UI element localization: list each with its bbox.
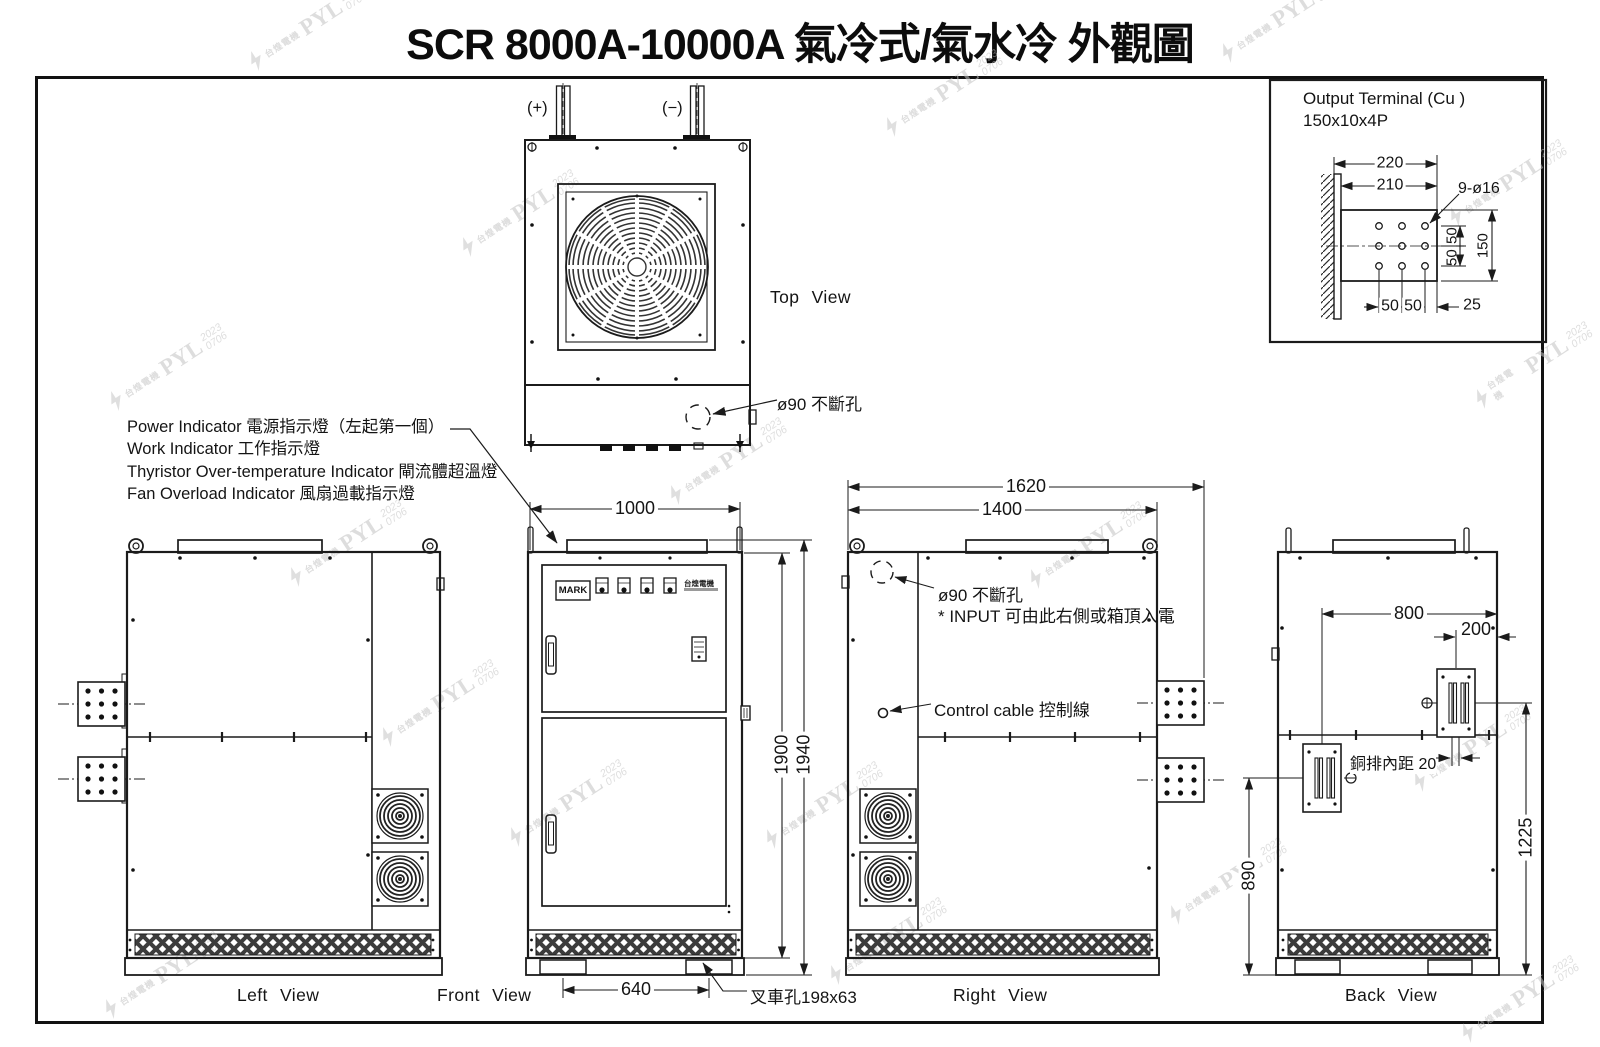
detail-dim-50-bottom-1: 50 [1379,298,1401,316]
topview-knockout-label: ø90 不斷孔 [777,390,862,415]
top-view-drawing [525,83,777,452]
right-view-caption: Right View [953,985,1047,1006]
detail-dim-210: 210 [1375,177,1406,195]
detail-title-line2: 150x10x4P [1303,111,1388,131]
busbar-gap-label: 銅排內距 20 [1350,750,1436,774]
legend-fan-overload-indicator: Fan Overload Indicator 風扇過載指示燈 [127,483,497,505]
left-view-caption: Left View [237,985,319,1006]
detail-dim-50-right-2: 50 [1444,247,1461,268]
forklift-hole-label: 叉車孔198x63 [750,983,857,1008]
minus-terminal-label: (−) [662,99,683,118]
detail-dim-holes: 9-ø16 [1458,180,1500,198]
control-cable-label: Control cable 控制線 [934,696,1090,721]
right-dim-1620: 1620 [1003,476,1049,497]
right-view-drawing [842,480,1224,975]
detail-title-line1: Output Terminal (Cu ) [1303,89,1465,109]
front-dim-1000: 1000 [612,498,658,519]
front-dim-1900: 1900 [772,732,793,778]
front-view-drawing [526,502,812,998]
front-view-caption: Front View [437,985,531,1006]
detail-dim-50-right-1: 50 [1444,225,1461,246]
back-dim-800: 800 [1391,603,1427,624]
right-dim-1400: 1400 [979,499,1025,520]
front-dim-1940: 1940 [794,732,815,778]
front-dim-640: 640 [618,979,654,1000]
indicator-legend: Power Indicator 電源指示燈（左起第一個） Work Indica… [127,416,497,506]
back-dim-200: 200 [1458,619,1494,640]
legend-power-indicator: Power Indicator 電源指示燈（左起第一個） [127,416,497,438]
detail-dim-25: 25 [1461,297,1483,315]
input-note-label: * INPUT 可由此右側或箱頂入電 [938,602,1175,627]
left-view-drawing [58,539,444,975]
front-panel-logo: 台煌電機 [684,580,718,591]
drawing-page: SCR 8000A-10000A 氣冷式/氣水冷 外觀圖 台煌電機PYL2023… [0,0,1600,1047]
back-dim-1225: 1225 [1516,815,1537,861]
mark-plate: MARK [556,581,590,600]
back-view-caption: Back View [1345,985,1437,1006]
drawing-linework [0,0,1600,1047]
back-dim-890: 890 [1239,858,1260,894]
legend-thyristor-indicator: Thyristor Over-temperature Indicator 閘流體… [127,461,497,483]
detail-dim-150: 150 [1475,231,1492,260]
top-view-caption: Top View [770,287,851,308]
plus-terminal-label: (+) [527,99,548,118]
detail-dim-220: 220 [1375,155,1406,173]
detail-dim-50-bottom-2: 50 [1402,298,1424,316]
legend-work-indicator: Work Indicator 工作指示燈 [127,438,497,460]
